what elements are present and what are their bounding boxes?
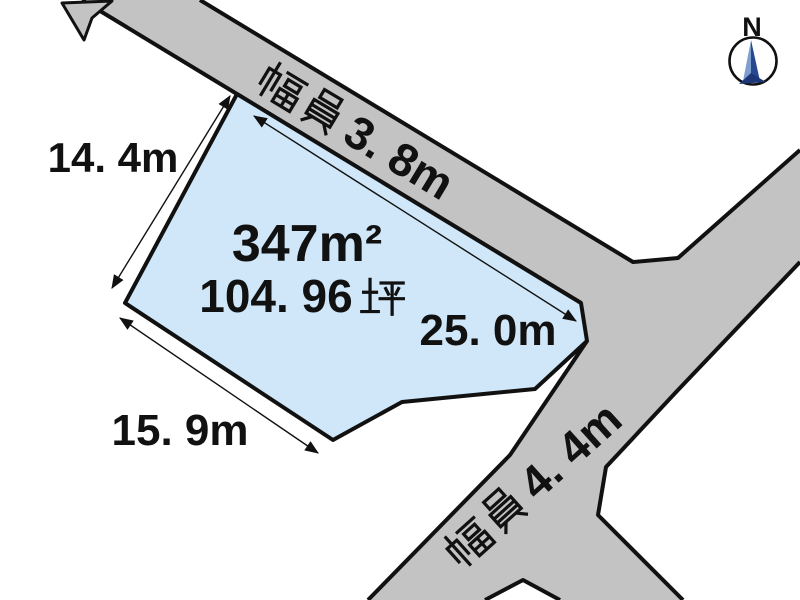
plot-drawing: 14. 4m 25. 0m 15. 9m 347m² 104. 96 3. 8m… [0,0,800,600]
dimension-label-west: 14. 4m [48,134,179,181]
area-tsubo-number: 104. 96 [199,270,352,322]
land-plot-diagram: 14. 4m 25. 0m 15. 9m 347m² 104. 96 3. 8m… [0,0,800,600]
road-end-arrow [62,1,112,40]
area-m2-label: 347m² [232,215,382,273]
compass: N [730,12,777,85]
dimension-label-southwest: 15. 9m [112,406,249,455]
dimension-label-frontage: 25. 0m [420,306,557,355]
